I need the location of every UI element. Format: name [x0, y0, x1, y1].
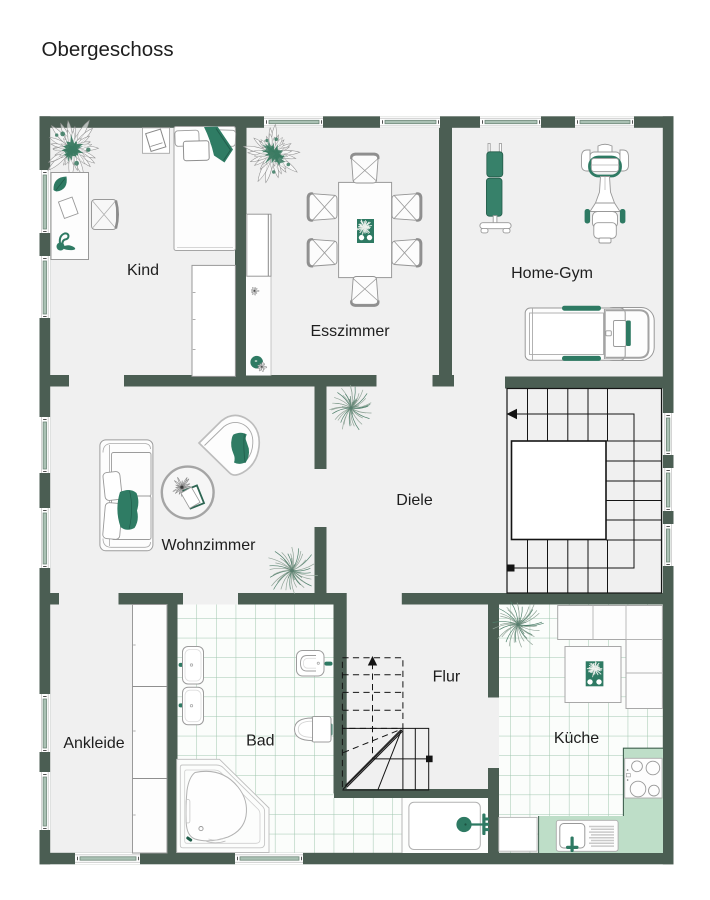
svg-text:Flur: Flur [433, 669, 461, 686]
svg-text:Diele: Diele [396, 492, 433, 509]
svg-text:Ankleide: Ankleide [63, 735, 124, 752]
svg-text:Wohnzimmer: Wohnzimmer [162, 537, 257, 554]
svg-text:Bad: Bad [246, 733, 274, 750]
svg-text:Home-Gym: Home-Gym [511, 265, 593, 282]
svg-text:Kind: Kind [127, 262, 159, 279]
svg-text:Küche: Küche [554, 730, 599, 747]
svg-text:Obergeschoss: Obergeschoss [42, 38, 174, 61]
svg-text:Esszimmer: Esszimmer [310, 323, 390, 340]
